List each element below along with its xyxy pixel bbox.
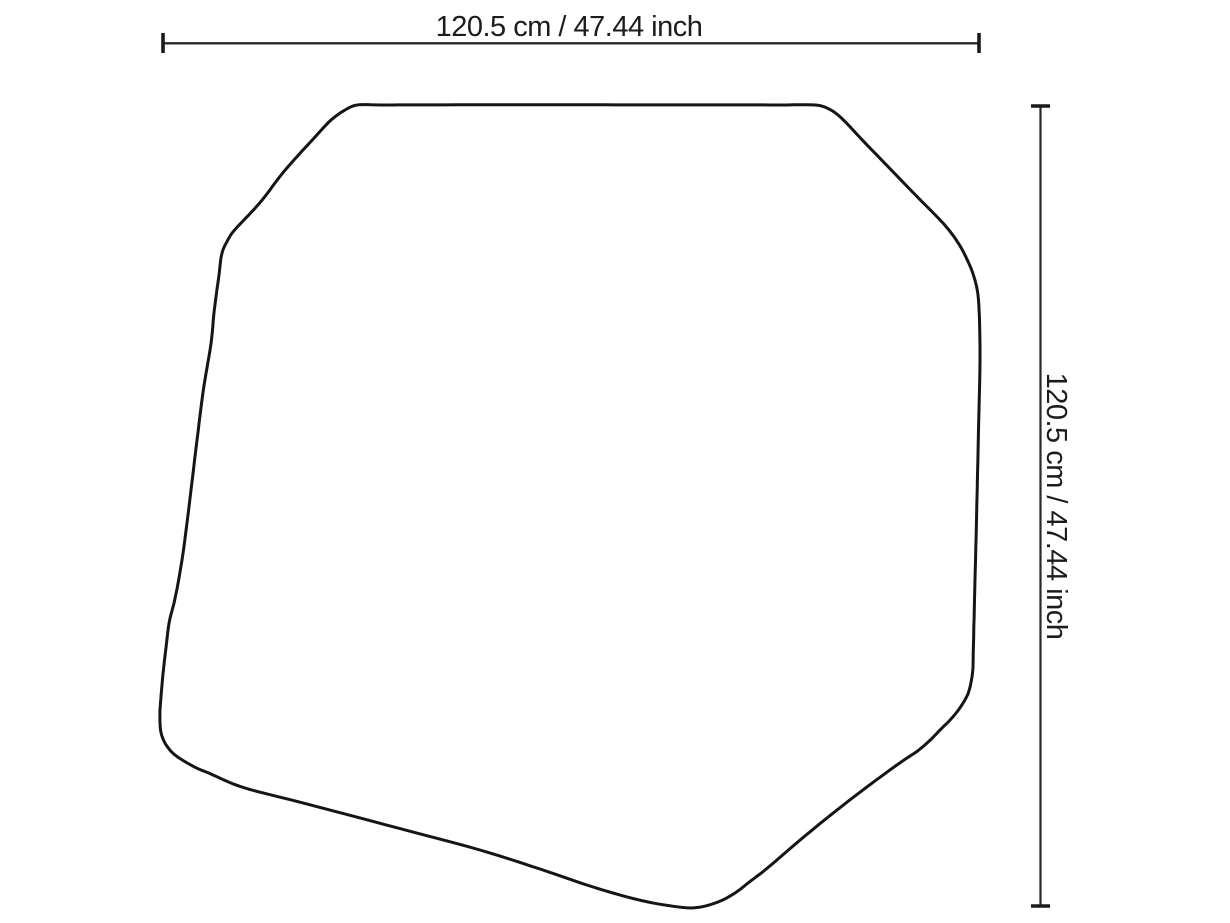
svg-text:120.5 cm / 47.44 inch: 120.5 cm / 47.44 inch [436, 11, 703, 43]
svg-text:120.5 cm / 47.44 inch: 120.5 cm / 47.44 inch [1040, 373, 1072, 640]
